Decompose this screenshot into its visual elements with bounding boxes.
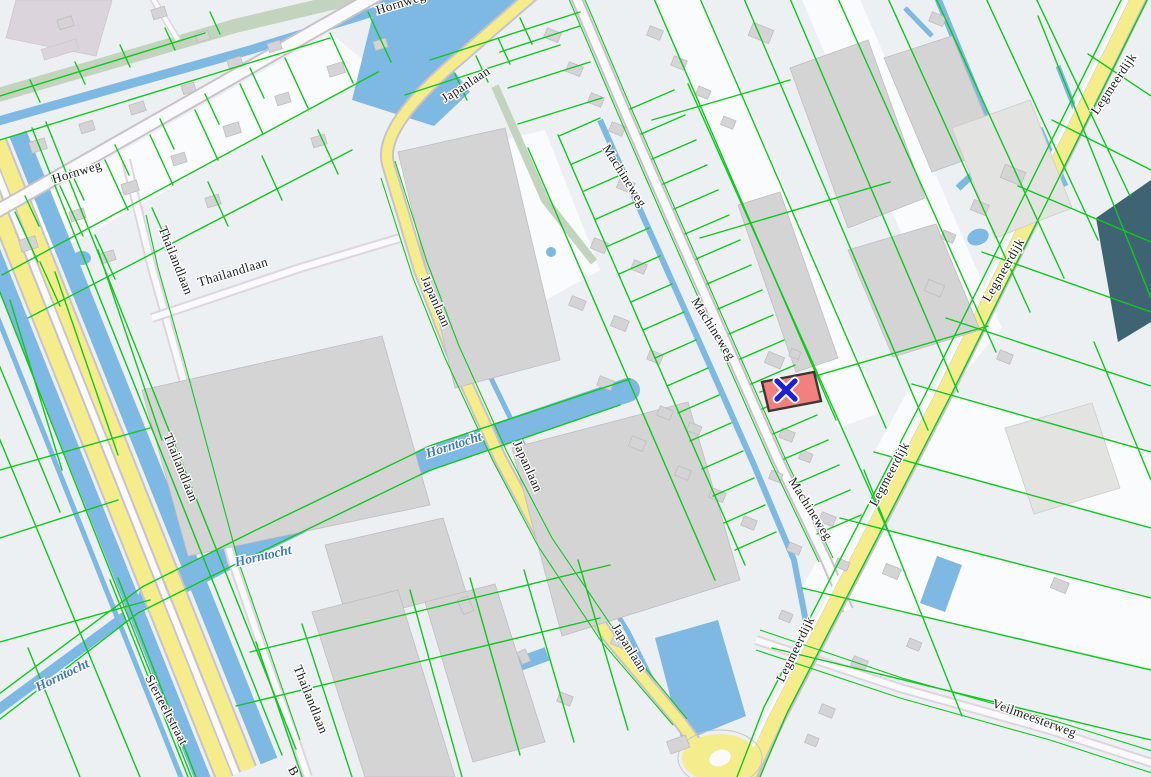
street-label-thailandlaan: Thailandlaan <box>291 663 332 736</box>
map-canvas[interactable]: HornwegHornwegJapanlaanJapanlaanJapanlaa… <box>0 0 1151 777</box>
dark-parcel <box>1096 180 1151 342</box>
warehouse <box>512 402 740 636</box>
selection-marker-icon[interactable] <box>777 381 795 399</box>
pond <box>655 620 746 742</box>
street-label-b: B <box>285 763 303 777</box>
